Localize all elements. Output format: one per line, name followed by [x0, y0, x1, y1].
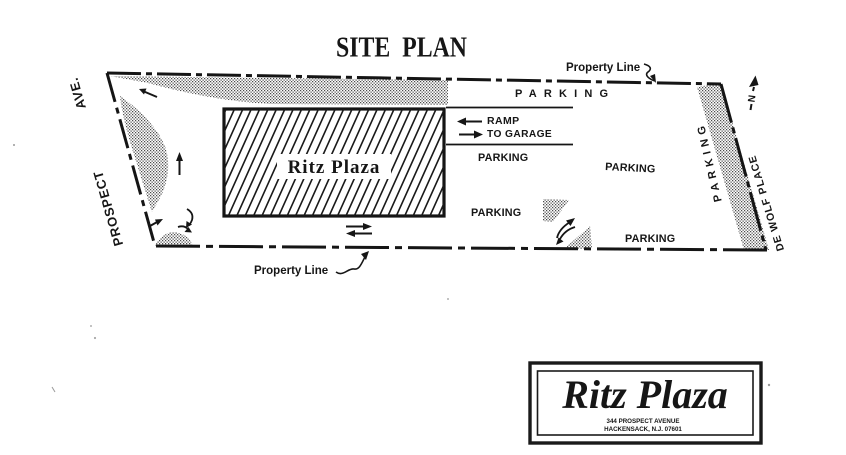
svg-text:Ritz Plaza: Ritz Plaza: [561, 372, 728, 417]
svg-text:N: N: [747, 94, 759, 103]
svg-text:Property Line: Property Line: [566, 62, 640, 74]
svg-text:SITE PLAN: SITE PLAN: [336, 33, 467, 64]
svg-text:AVE.: AVE.: [65, 76, 88, 111]
svg-text:344 PROSPECT AVENUE: 344 PROSPECT AVENUE: [607, 418, 680, 425]
svg-text:HACKENSACK, N.J. 07601: HACKENSACK, N.J. 07601: [604, 426, 682, 433]
svg-text:PARKING: PARKING: [478, 152, 528, 164]
svg-text:Ritz Plaza: Ritz Plaza: [288, 157, 381, 178]
svg-text:PARKING: PARKING: [605, 161, 656, 176]
svg-text:PROSPECT: PROSPECT: [90, 169, 126, 248]
svg-text:PARKING: PARKING: [625, 233, 675, 245]
svg-text:RAMP: RAMP: [487, 115, 520, 127]
svg-text:PARKING: PARKING: [471, 207, 521, 219]
svg-text:TO GARAGE: TO GARAGE: [487, 129, 552, 140]
svg-text:Property Line: Property Line: [254, 265, 328, 277]
svg-text:PARKING: PARKING: [515, 88, 615, 100]
